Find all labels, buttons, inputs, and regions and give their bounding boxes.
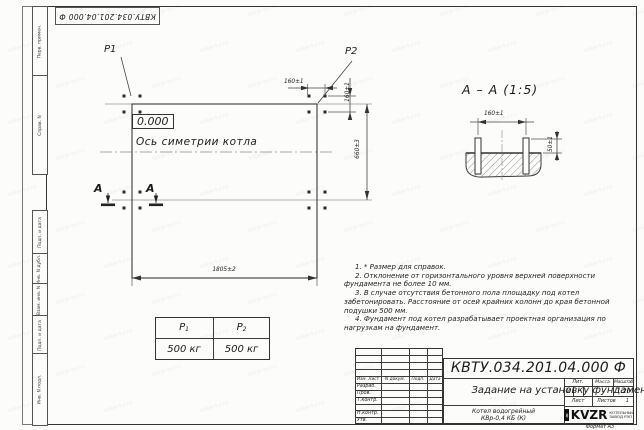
anchor-bolt-dot [123, 191, 126, 194]
anchor-bolt-dot [308, 111, 311, 114]
format-label: Формат А3 [570, 424, 630, 430]
row-label-razrab: Разраб. [357, 384, 376, 389]
level-mark: 0.000 [132, 114, 174, 129]
kvzr-logo-text: KVZR [571, 408, 608, 422]
drawing-title: Задание на установку фундамента [443, 378, 564, 405]
note-item: 1. * Размер для справок. [344, 263, 636, 272]
scale-header: Масштаб [613, 378, 634, 386]
sheets-cell: Листов 1 [592, 396, 634, 406]
product-line2: КВр-0,4 КБ (К) [481, 415, 526, 422]
grid-line [355, 355, 443, 356]
kvzr-logo-caption: КОТЕЛЬНЫЙ ЗАВОД РЭП [609, 411, 634, 420]
kvzr-logo-icon [564, 409, 569, 421]
row-label-utv: Утв. [357, 418, 367, 423]
col-header-n-dokum: N докум. [381, 376, 409, 383]
load-point-p1-label: P1 [104, 44, 116, 55]
section-mark-letter-right: А [146, 182, 155, 195]
grid-line [355, 362, 443, 363]
plan-view-lines [100, 57, 372, 286]
section-dim-50: 50±1 [548, 131, 554, 157]
anchor-bolt-dot [139, 95, 142, 98]
lit-value: И [564, 386, 573, 396]
grid-line [355, 369, 443, 370]
dim-width-660: 660±3 [355, 132, 361, 166]
product-line1: Котел водогрейный [472, 408, 535, 415]
section-dim-160: 160±1 [484, 111, 504, 117]
grid-line [355, 404, 443, 405]
row-label-prov: Пров. [357, 391, 371, 396]
anchor-bolt-dot [123, 207, 126, 210]
note-item: 3. В случае отсутствия бетонного пола пл… [344, 289, 636, 315]
col-header-data: Дата [427, 376, 443, 383]
anchor-bolt-dot [139, 207, 142, 210]
lit-header: Лит. [564, 378, 592, 386]
mass-value: - [592, 386, 613, 396]
sheets-value: 1 [626, 398, 629, 404]
note-item: 2. Отклонение от горизонтального уровня … [344, 272, 636, 289]
drawing-title-text: Задание на установку фундамента [472, 387, 536, 396]
grid-line [355, 417, 443, 418]
product-name: Котел водогрейный КВр-0,4 КБ (К) [443, 405, 564, 424]
p1-subscript: 1 [185, 326, 189, 333]
mass-header: Масса [592, 378, 613, 386]
anchor-bolt-dot [308, 207, 311, 210]
p2-subscript: 2 [243, 326, 247, 333]
kvzr-caption-line2: ЗАВОД РЭП [609, 415, 634, 419]
row-label-nkontr: Н.контр. [357, 411, 378, 416]
grid-line [381, 348, 382, 424]
notes-block: 1. * Размер для справок. 2. Отклонение о… [344, 263, 636, 333]
sheets-label: Листов [597, 398, 616, 404]
note-item: 4. Фундамент под котел разрабатывает про… [344, 315, 636, 332]
load-point-p2-label: P2 [345, 46, 357, 57]
anchor-bolt-dot [139, 191, 142, 194]
doc-number: КВТУ.034.201.04.000 Ф [443, 358, 634, 378]
anchor-bolt-dot [324, 191, 327, 194]
scale-value: 1:20 [613, 386, 634, 396]
section-mark-letter-left: А [94, 182, 103, 195]
anchor-bolt-dot [123, 95, 126, 98]
anchor-bolt-dot [308, 95, 311, 98]
dim-bolt-y-160: 160±1 [345, 79, 351, 105]
dim-length-1805: 1805±2 [192, 267, 256, 273]
load-table-header-p1: P 1 [155, 317, 213, 338]
anchor-bolt-dot [123, 111, 126, 114]
load-table-value-p1: 500 кг [155, 338, 213, 360]
sheet-label: Лист [564, 396, 592, 406]
drawing-sheet: kotel-kv.rukotel-kv.rukotel-kv.rukotel-k… [0, 0, 644, 430]
anchor-bolt-dot [324, 207, 327, 210]
grid-line [427, 348, 428, 424]
row-label-tkontr: Т.контр. [357, 398, 378, 403]
company-logo: KVZR КОТЕЛЬНЫЙ ЗАВОД РЭП [564, 406, 634, 424]
col-header-podp: Подп. [409, 376, 427, 383]
section-title: А – А (1:5) [462, 82, 538, 97]
symmetry-axis-label: Ось симетрии котла [136, 136, 257, 148]
grid-line [409, 348, 410, 424]
load-table-value-p2: 500 кг [213, 338, 270, 360]
anchor-bolt-dot [308, 191, 311, 194]
col-header-izm-list: Изм. Лист [355, 376, 381, 383]
anchor-bolt-dot [324, 111, 327, 114]
dim-bolt-x-160: 160±1 [284, 79, 304, 85]
load-table-header-p2: P 2 [213, 317, 270, 338]
